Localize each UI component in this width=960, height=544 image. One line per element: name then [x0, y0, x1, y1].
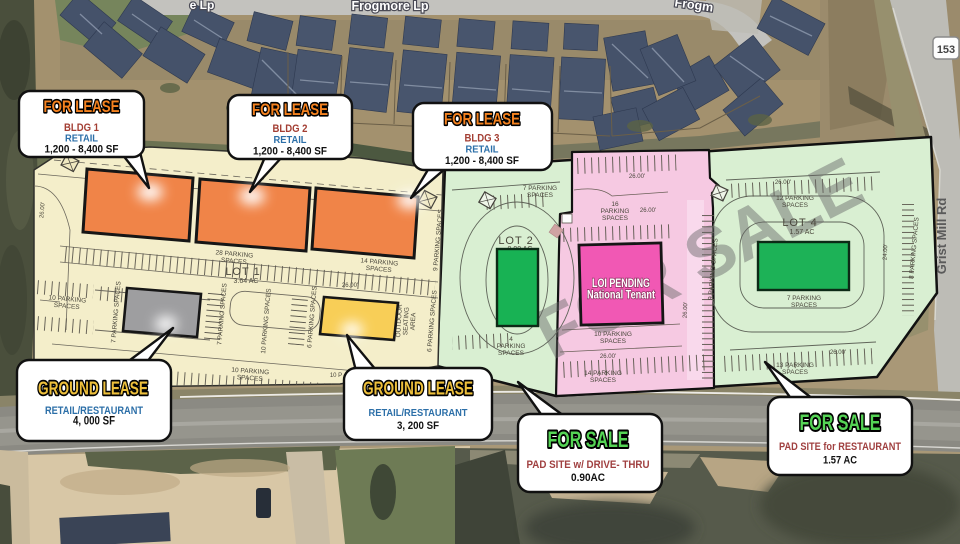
svg-text:10 P: 10 P	[330, 373, 342, 379]
svg-text:FOR SALE: FOR SALE	[800, 410, 881, 435]
svg-text:SPACES: SPACES	[498, 350, 525, 357]
svg-text:SPACES: SPACES	[590, 377, 617, 384]
svg-text:1,200 - 8,400 SF: 1,200 - 8,400 SF	[253, 146, 327, 158]
svg-text:7 PARKING: 7 PARKING	[787, 295, 821, 302]
svg-text:1,200 - 8,400 SF: 1,200 - 8,400 SF	[445, 155, 519, 167]
svg-text:RETAIL/RESTAURANT: RETAIL/RESTAURANT	[369, 407, 469, 419]
svg-text:16: 16	[611, 201, 619, 208]
svg-text:4: 4	[509, 336, 513, 343]
svg-text:AREA: AREA	[410, 312, 418, 331]
svg-text:PARKING: PARKING	[601, 208, 630, 215]
svg-text:FOR LEASE: FOR LEASE	[252, 100, 328, 119]
svg-text:RETAIL: RETAIL	[274, 134, 308, 146]
svg-text:1.57 AC: 1.57 AC	[790, 229, 815, 236]
svg-text:26.00': 26.00'	[683, 302, 690, 318]
svg-text:LOT 1: LOT 1	[225, 266, 260, 278]
svg-text:FOR LEASE: FOR LEASE	[444, 110, 520, 129]
svg-text:PAD SITE w/ DRIVE- THRU: PAD SITE w/ DRIVE- THRU	[527, 459, 650, 471]
svg-text:SPACES: SPACES	[791, 302, 818, 309]
svg-text:e Lp: e Lp	[190, 0, 215, 12]
svg-text:SPACES: SPACES	[782, 202, 809, 209]
svg-text:Grist Mill Rd: Grist Mill Rd	[934, 198, 949, 275]
svg-text:14 PARKING: 14 PARKING	[584, 370, 622, 377]
svg-text:3.64 AC: 3.64 AC	[234, 278, 259, 285]
svg-text:3, 200 SF: 3, 200 SF	[397, 420, 439, 432]
svg-text:National Tenant: National Tenant	[587, 288, 655, 302]
svg-text:4, 000 SF: 4, 000 SF	[73, 416, 115, 428]
svg-text:26.00': 26.00'	[629, 174, 645, 180]
svg-text:SPACES: SPACES	[527, 192, 554, 199]
svg-text:RETAIL: RETAIL	[466, 144, 500, 156]
svg-text:1.57 AC: 1.57 AC	[823, 455, 857, 467]
svg-text:13 PARKING: 13 PARKING	[776, 362, 814, 369]
svg-text:10 PARKING: 10 PARKING	[594, 331, 632, 338]
svg-text:LOT 4: LOT 4	[782, 217, 817, 229]
svg-text:PARKING: PARKING	[497, 343, 526, 350]
svg-text:0.90AC: 0.90AC	[571, 472, 605, 484]
svg-text:GROUND LEASE: GROUND LEASE	[363, 379, 473, 399]
svg-text:SPACES: SPACES	[782, 369, 809, 376]
svg-text:Frogmore Lp: Frogmore Lp	[351, 0, 428, 13]
svg-text:26.00': 26.00'	[830, 350, 846, 356]
svg-text:FOR LEASE: FOR LEASE	[44, 97, 120, 116]
svg-text:26.00': 26.00'	[775, 180, 791, 186]
svg-text:24.00': 24.00'	[883, 244, 890, 260]
svg-text:SPACES: SPACES	[600, 338, 627, 345]
svg-text:1,200 - 8,400 SF: 1,200 - 8,400 SF	[45, 144, 119, 156]
svg-text:26.00': 26.00'	[342, 283, 358, 289]
svg-text:153: 153	[937, 44, 955, 56]
svg-text:26.00': 26.00'	[640, 208, 656, 214]
svg-text:GROUND LEASE: GROUND LEASE	[38, 379, 148, 399]
svg-text:FOR SALE: FOR SALE	[548, 427, 629, 452]
svg-text:PAD SITE for RESTAURANT: PAD SITE for RESTAURANT	[779, 441, 901, 453]
svg-text:7 PARKING: 7 PARKING	[523, 185, 557, 192]
svg-text:26.00': 26.00'	[600, 354, 616, 360]
svg-text:12 PARKING: 12 PARKING	[776, 195, 814, 202]
svg-text:SPACES: SPACES	[602, 215, 629, 222]
